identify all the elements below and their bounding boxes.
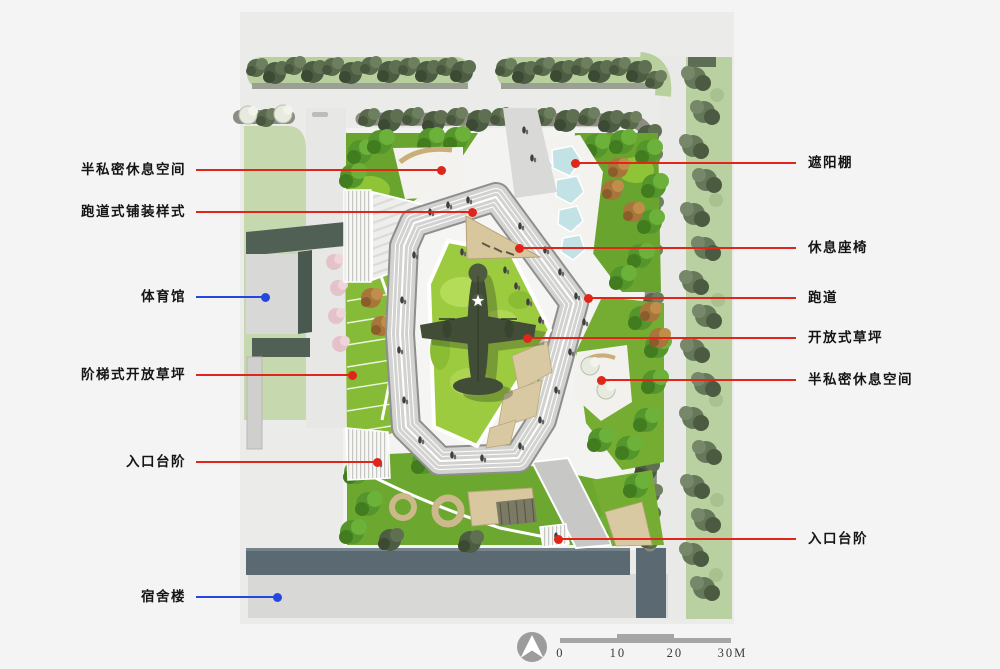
leader-line: [575, 162, 796, 164]
leader-line: [196, 596, 277, 598]
scale-tick-30: 30M: [718, 646, 748, 661]
scale-bar: 0 10 20 30M: [560, 630, 732, 664]
leader-line: [519, 247, 796, 249]
leader-line: [196, 461, 377, 463]
north-arrow-icon: [516, 631, 548, 668]
label-runway-paving: 跑道式铺装样式: [81, 203, 186, 221]
leader-dot: [554, 535, 563, 544]
scale-tick-20: 20: [667, 646, 684, 661]
label-stepped-lawn: 阶梯式开放草坪: [81, 366, 186, 384]
label-running-track: 跑道: [808, 289, 838, 307]
scale-tick-10: 10: [610, 646, 627, 661]
scale-bar-segment: [560, 638, 617, 643]
scale-bar-segment: [674, 638, 731, 643]
landscape-plan-page: 半私密休息空间 跑道式铺装样式 体育馆 阶梯式开放草坪 入口台阶 宿舍楼 遮阳棚…: [0, 0, 1000, 669]
label-sunshade-canopy: 遮阳棚: [808, 154, 853, 172]
leader-dot: [373, 458, 382, 467]
leader-line: [196, 169, 441, 171]
leader-dot: [584, 294, 593, 303]
leader-dot: [468, 208, 477, 217]
label-semi-private-space-right: 半私密休息空间: [808, 371, 913, 389]
leader-dot: [571, 159, 580, 168]
leader-line: [527, 337, 796, 339]
label-entry-steps-left: 入口台阶: [126, 453, 186, 471]
label-gymnasium: 体育馆: [141, 288, 186, 306]
leader-line: [558, 538, 796, 540]
leader-dot: [348, 371, 357, 380]
label-open-lawn: 开放式草坪: [808, 329, 883, 347]
label-entry-steps-right: 入口台阶: [808, 530, 868, 548]
leader-line: [601, 379, 796, 381]
leader-dot: [597, 376, 606, 385]
label-dormitory: 宿舍楼: [141, 588, 186, 606]
label-semi-private-space-left: 半私密休息空间: [81, 161, 186, 179]
leader-line: [196, 211, 472, 213]
leader-dot: [437, 166, 446, 175]
leader-dot: [273, 593, 282, 602]
leader-dot: [523, 334, 532, 343]
leader-line: [588, 297, 796, 299]
leader-line: [196, 296, 265, 298]
leader-line: [196, 374, 352, 376]
label-rest-seating: 休息座椅: [808, 239, 868, 257]
entry-steps-west-upper: [344, 190, 371, 282]
scale-bar-segment: [617, 634, 674, 643]
entry-steps-west-lower: [346, 428, 390, 480]
leader-dot: [515, 244, 524, 253]
scale-tick-0: 0: [556, 646, 564, 661]
leader-dot: [261, 293, 270, 302]
dormitory-building: [246, 548, 668, 618]
